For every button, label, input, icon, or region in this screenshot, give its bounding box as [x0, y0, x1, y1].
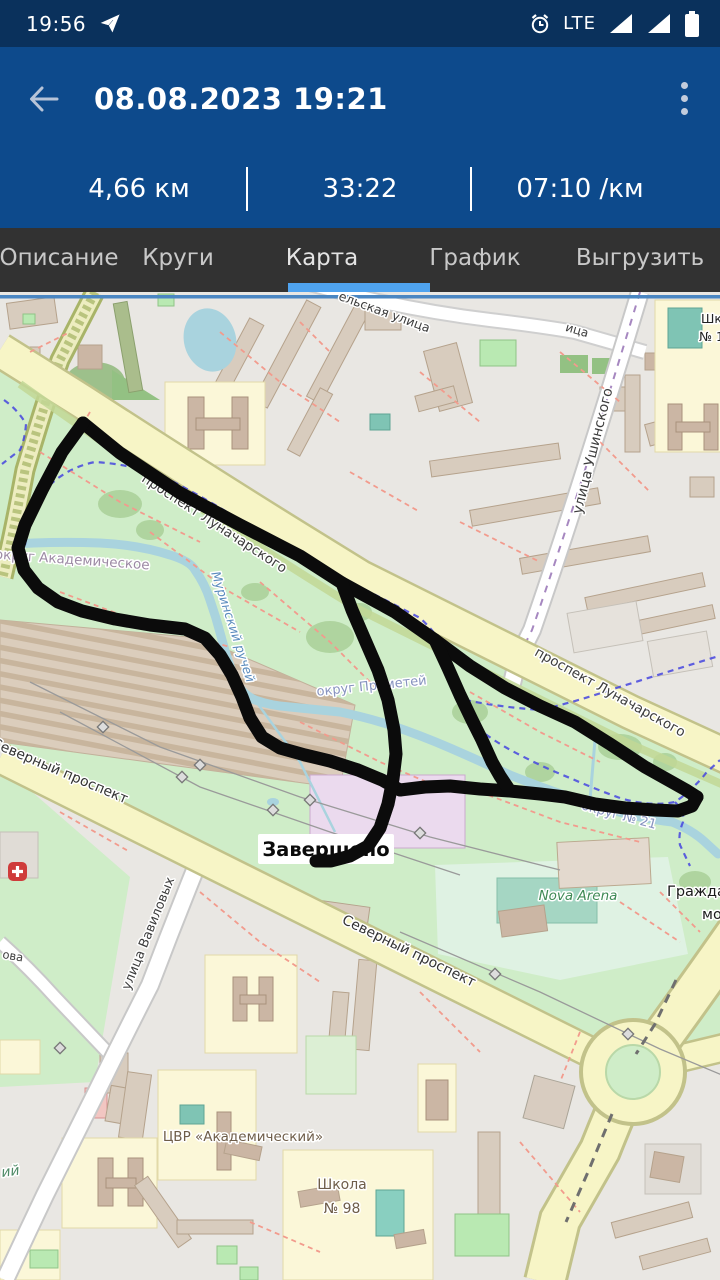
network-type-label: LTE	[563, 13, 596, 34]
map-label: ий	[0, 1163, 20, 1181]
map-label: Nova Arena	[539, 888, 618, 904]
tab-chart[interactable]: График	[429, 228, 520, 292]
alarm-icon	[529, 12, 551, 36]
dot	[681, 82, 688, 89]
signal-icon-1	[608, 12, 634, 36]
app-bar: 08.08.2023 19:21	[0, 47, 720, 150]
page-title: 08.08.2023 19:21	[94, 82, 388, 116]
signal-icon-2	[646, 12, 672, 36]
map-label: мо	[702, 907, 720, 923]
activity-stats-bar: 4,66 км 33:22 07:10 /км	[0, 150, 720, 228]
status-bar: 19:56 LTE	[0, 0, 720, 47]
tab-laps[interactable]: Круги	[142, 228, 214, 292]
stat-separator	[246, 167, 248, 211]
overflow-menu-button[interactable]	[662, 77, 706, 121]
telegram-notification-icon	[98, 12, 122, 36]
status-time: 19:56	[26, 12, 86, 36]
map-label: № 98	[324, 1201, 361, 1217]
back-arrow-icon	[27, 84, 61, 114]
dot	[681, 108, 688, 115]
back-button[interactable]	[22, 77, 66, 121]
map-view[interactable]: ельская улицаицаШко№ 1улица Ушинскогопро…	[0, 292, 720, 1280]
map-label: ЦВР «Академический»	[163, 1129, 323, 1145]
stat-pace: 07:10 /км	[516, 150, 643, 228]
battery-icon	[684, 10, 700, 38]
hospital-icon	[8, 862, 27, 881]
tab-bar: Описание Круги Карта График Выгрузить	[0, 228, 720, 292]
phone-screen: 19:56 LTE	[0, 0, 720, 1280]
tab-description[interactable]: Описание	[0, 228, 118, 292]
dot	[681, 95, 688, 102]
map-label: № 1	[699, 329, 720, 344]
map-label: Шко	[701, 311, 720, 326]
tab-export[interactable]: Выгрузить	[576, 228, 704, 292]
active-tab-indicator	[288, 283, 430, 292]
stat-duration: 33:22	[323, 150, 398, 228]
map-label: Гражда	[667, 884, 720, 900]
map-canvas: ельская улицаицаШко№ 1улица Ушинскогопро…	[0, 292, 720, 1280]
stat-distance: 4,66 км	[88, 150, 189, 228]
map-label: Школа	[317, 1177, 367, 1193]
stat-separator	[470, 167, 472, 211]
